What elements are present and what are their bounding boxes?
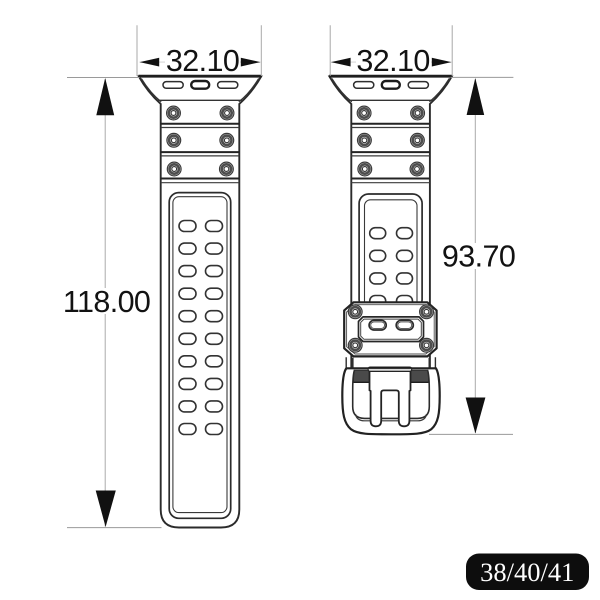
- svg-text:32.10: 32.10: [356, 44, 429, 78]
- svg-text:38/40/41: 38/40/41: [480, 557, 574, 587]
- svg-text:32.10: 32.10: [166, 44, 239, 78]
- svg-text:118.00: 118.00: [63, 285, 150, 319]
- svg-text:93.70: 93.70: [442, 240, 515, 274]
